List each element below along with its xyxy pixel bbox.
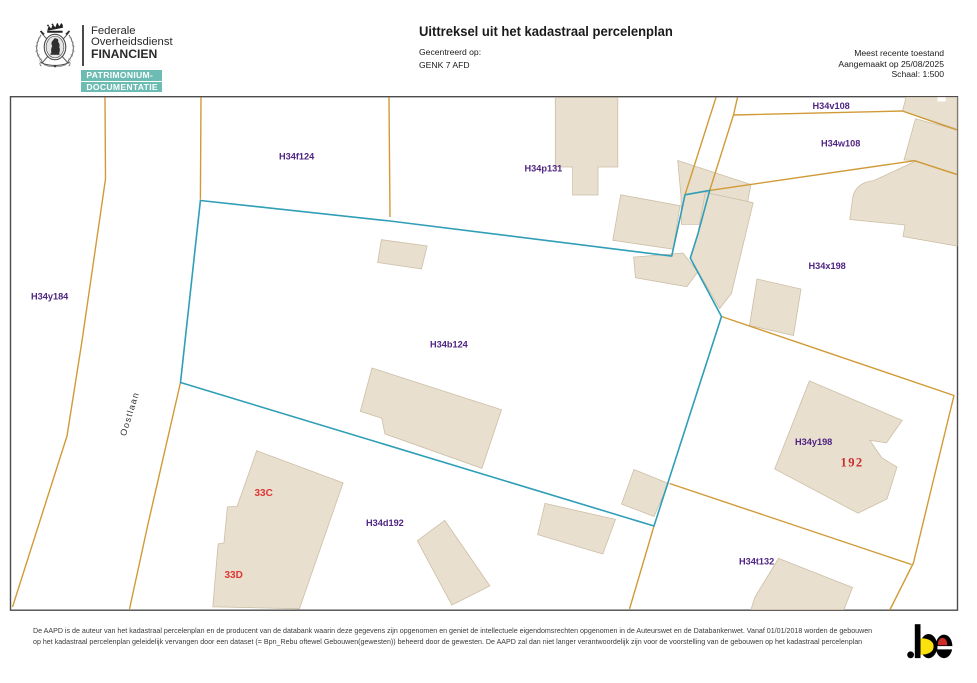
svg-text:H34d192: H34d192	[366, 518, 404, 528]
svg-text:H34b124: H34b124	[430, 340, 469, 350]
svg-text:192: 192	[841, 456, 864, 470]
svg-text:H34w108: H34w108	[821, 139, 860, 149]
svg-text:33C: 33C	[255, 488, 273, 499]
svg-text:H34f124: H34f124	[279, 152, 315, 162]
svg-text:H34v108: H34v108	[813, 101, 850, 111]
svg-text:H34y198: H34y198	[795, 437, 832, 447]
svg-text:H34y184: H34y184	[31, 292, 69, 302]
svg-text:H34p131: H34p131	[525, 164, 563, 174]
svg-text:33D: 33D	[225, 570, 243, 581]
svg-text:H34t132: H34t132	[739, 557, 774, 567]
svg-text:H34x198: H34x198	[809, 261, 846, 271]
